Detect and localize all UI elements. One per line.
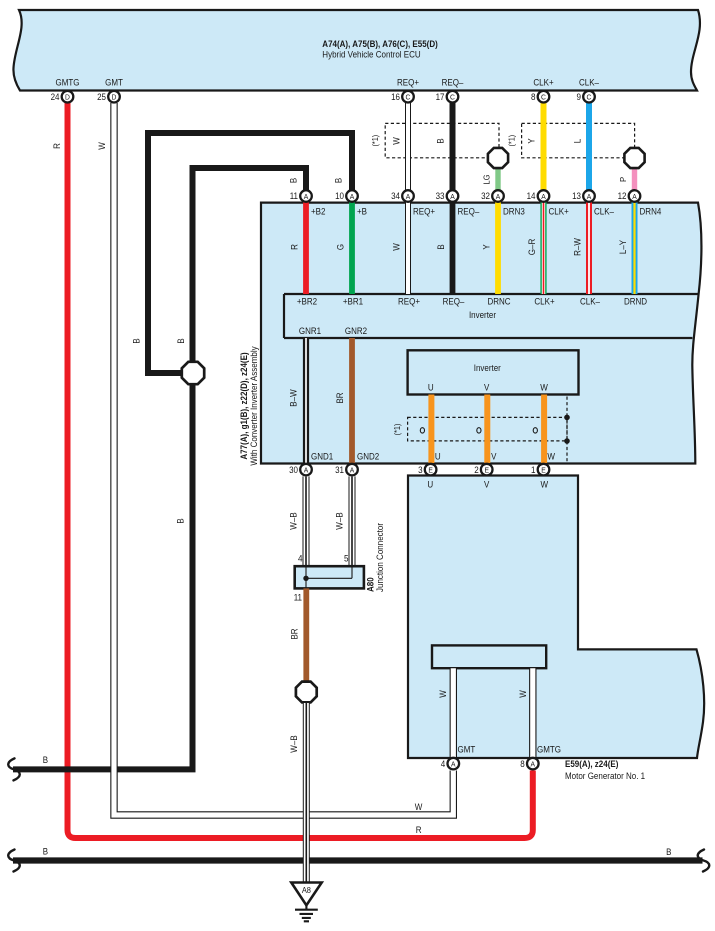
svg-text:CLK+: CLK+ (549, 207, 569, 217)
svg-text:U: U (427, 480, 433, 490)
svg-text:V: V (491, 452, 496, 462)
svg-text:A77(A), g1(B), z22(D), z24(E): A77(A), g1(B), z22(D), z24(E) (239, 352, 249, 459)
svg-text:CLK–: CLK– (594, 207, 614, 217)
svg-text:4: 4 (441, 759, 446, 769)
svg-text:A: A (541, 192, 546, 201)
svg-text:L–Y: L–Y (618, 240, 628, 254)
svg-text:W: W (518, 690, 528, 698)
svg-text:Hybrid Vehicle Control ECU: Hybrid Vehicle Control ECU (322, 50, 420, 60)
svg-text:8: 8 (531, 92, 536, 102)
svg-text:31: 31 (335, 465, 344, 475)
svg-text:8: 8 (520, 759, 525, 769)
svg-text:Junction Connector: Junction Connector (375, 523, 385, 592)
svg-text:W: W (541, 480, 549, 490)
svg-text:4: 4 (298, 554, 303, 564)
svg-text:CLK+: CLK+ (534, 297, 554, 307)
svg-text:E: E (541, 465, 546, 474)
svg-text:9: 9 (577, 92, 582, 102)
svg-text:32: 32 (481, 191, 490, 201)
svg-text:REQ+: REQ+ (397, 78, 419, 88)
svg-text:DRNC: DRNC (487, 297, 511, 307)
svg-text:DRN4: DRN4 (640, 207, 662, 217)
svg-text:E: E (428, 465, 433, 474)
svg-text:(*1): (*1) (371, 135, 380, 147)
svg-text:DRN3: DRN3 (503, 207, 525, 217)
svg-text:G: G (335, 244, 345, 250)
svg-text:R–W: R–W (572, 237, 582, 255)
svg-text:Inverter: Inverter (474, 363, 501, 373)
svg-text:B: B (334, 178, 344, 183)
svg-text:B: B (436, 244, 446, 249)
svg-text:25: 25 (97, 92, 106, 102)
svg-text:With Converter Inverter Assemb: With Converter Inverter Assembly (249, 346, 259, 466)
svg-text:W: W (97, 142, 107, 150)
svg-text:B: B (176, 338, 186, 343)
svg-text:GMT: GMT (458, 745, 476, 755)
svg-text:REQ–: REQ– (442, 78, 464, 88)
svg-text:3: 3 (418, 465, 423, 475)
svg-text:CLK–: CLK– (579, 78, 599, 88)
svg-text:B: B (436, 138, 446, 143)
svg-text:REQ+: REQ+ (398, 297, 420, 307)
svg-text:(*1): (*1) (508, 135, 517, 147)
svg-text:16: 16 (391, 92, 400, 102)
svg-text:REQ–: REQ– (443, 297, 465, 307)
svg-text:BR: BR (335, 392, 345, 403)
svg-text:33: 33 (436, 191, 445, 201)
svg-text:A: A (451, 759, 456, 768)
svg-text:BR: BR (290, 628, 300, 639)
svg-text:U: U (435, 452, 441, 462)
svg-text:A: A (531, 759, 536, 768)
svg-text:C: C (450, 93, 456, 102)
svg-text:A: A (496, 192, 501, 201)
svg-text:A: A (587, 192, 592, 201)
svg-text:REQ+: REQ+ (413, 207, 435, 217)
svg-text:13: 13 (572, 191, 581, 201)
svg-text:GNR1: GNR1 (299, 326, 321, 336)
svg-text:C: C (406, 93, 412, 102)
svg-text:V: V (484, 383, 489, 393)
svg-text:GMT: GMT (105, 78, 123, 88)
svg-text:W: W (392, 137, 402, 145)
svg-text:11: 11 (294, 593, 302, 603)
svg-text:D: D (112, 93, 117, 102)
svg-text:+B: +B (357, 207, 367, 217)
svg-text:R: R (289, 244, 299, 250)
svg-text:Inverter: Inverter (469, 310, 496, 320)
svg-text:A: A (350, 192, 355, 201)
svg-text:24: 24 (51, 92, 60, 102)
svg-text:CLK+: CLK+ (533, 78, 553, 88)
svg-text:W: W (438, 690, 448, 698)
svg-text:GNR2: GNR2 (345, 326, 367, 336)
svg-text:12: 12 (618, 191, 627, 201)
svg-text:GND2: GND2 (357, 452, 379, 462)
svg-text:G–R: G–R (527, 239, 537, 256)
svg-text:A: A (304, 465, 309, 474)
svg-text:17: 17 (436, 92, 445, 102)
svg-text:A: A (304, 192, 309, 201)
svg-text:P: P (618, 177, 628, 182)
svg-text:DRND: DRND (624, 297, 647, 307)
svg-text:B: B (666, 847, 671, 857)
svg-text:W: W (547, 452, 555, 462)
svg-text:34: 34 (391, 191, 400, 201)
svg-text:V: V (484, 480, 489, 490)
svg-text:W: W (391, 243, 401, 251)
svg-text:Motor Generator No. 1: Motor Generator No. 1 (565, 771, 645, 781)
svg-text:A: A (350, 465, 355, 474)
svg-text:B: B (43, 847, 48, 857)
svg-text:A: A (406, 192, 411, 201)
svg-text:R: R (52, 143, 62, 149)
svg-text:D: D (65, 93, 70, 102)
svg-text:L: L (573, 139, 583, 144)
svg-text:14: 14 (527, 191, 536, 201)
svg-text:A8: A8 (302, 886, 312, 895)
svg-text:W: W (415, 802, 423, 812)
svg-text:GMTG: GMTG (56, 78, 80, 88)
svg-text:+BR1: +BR1 (343, 297, 363, 307)
svg-text:A80: A80 (366, 577, 376, 592)
svg-text:10: 10 (335, 191, 344, 201)
svg-text:R: R (416, 825, 422, 835)
svg-text:W–B: W–B (335, 512, 345, 530)
svg-text:+BR2: +BR2 (297, 297, 317, 307)
svg-text:E: E (484, 465, 489, 474)
svg-text:A: A (450, 192, 455, 201)
svg-text:W: W (540, 383, 548, 393)
svg-text:CLK–: CLK– (580, 297, 600, 307)
svg-text:REQ–: REQ– (458, 207, 480, 217)
svg-text:B: B (289, 178, 299, 183)
svg-text:E59(A), z24(E): E59(A), z24(E) (565, 759, 618, 769)
svg-text:W–B: W–B (289, 512, 299, 530)
svg-text:GND1: GND1 (311, 452, 333, 462)
svg-text:B: B (176, 518, 186, 523)
svg-text:C: C (541, 93, 547, 102)
svg-text:A: A (632, 192, 637, 201)
svg-text:2: 2 (474, 465, 479, 475)
svg-text:B–W: B–W (289, 389, 299, 407)
svg-text:1: 1 (531, 465, 536, 475)
svg-text:B: B (132, 338, 142, 343)
svg-text:5: 5 (344, 554, 349, 564)
svg-text:B: B (43, 755, 48, 765)
svg-text:30: 30 (289, 465, 298, 475)
svg-text:11: 11 (290, 191, 298, 201)
svg-text:A74(A), A75(B), A76(C), E55(D): A74(A), A75(B), A76(C), E55(D) (322, 39, 438, 49)
svg-text:+B2: +B2 (311, 207, 326, 217)
svg-text:W–B: W–B (289, 735, 299, 753)
svg-text:U: U (428, 383, 434, 393)
svg-text:Y: Y (527, 138, 537, 143)
svg-text:(*1): (*1) (393, 423, 402, 435)
svg-text:C: C (587, 93, 593, 102)
svg-text:Y: Y (481, 244, 491, 249)
svg-text:LG: LG (482, 174, 492, 184)
svg-text:GMTG: GMTG (537, 745, 561, 755)
